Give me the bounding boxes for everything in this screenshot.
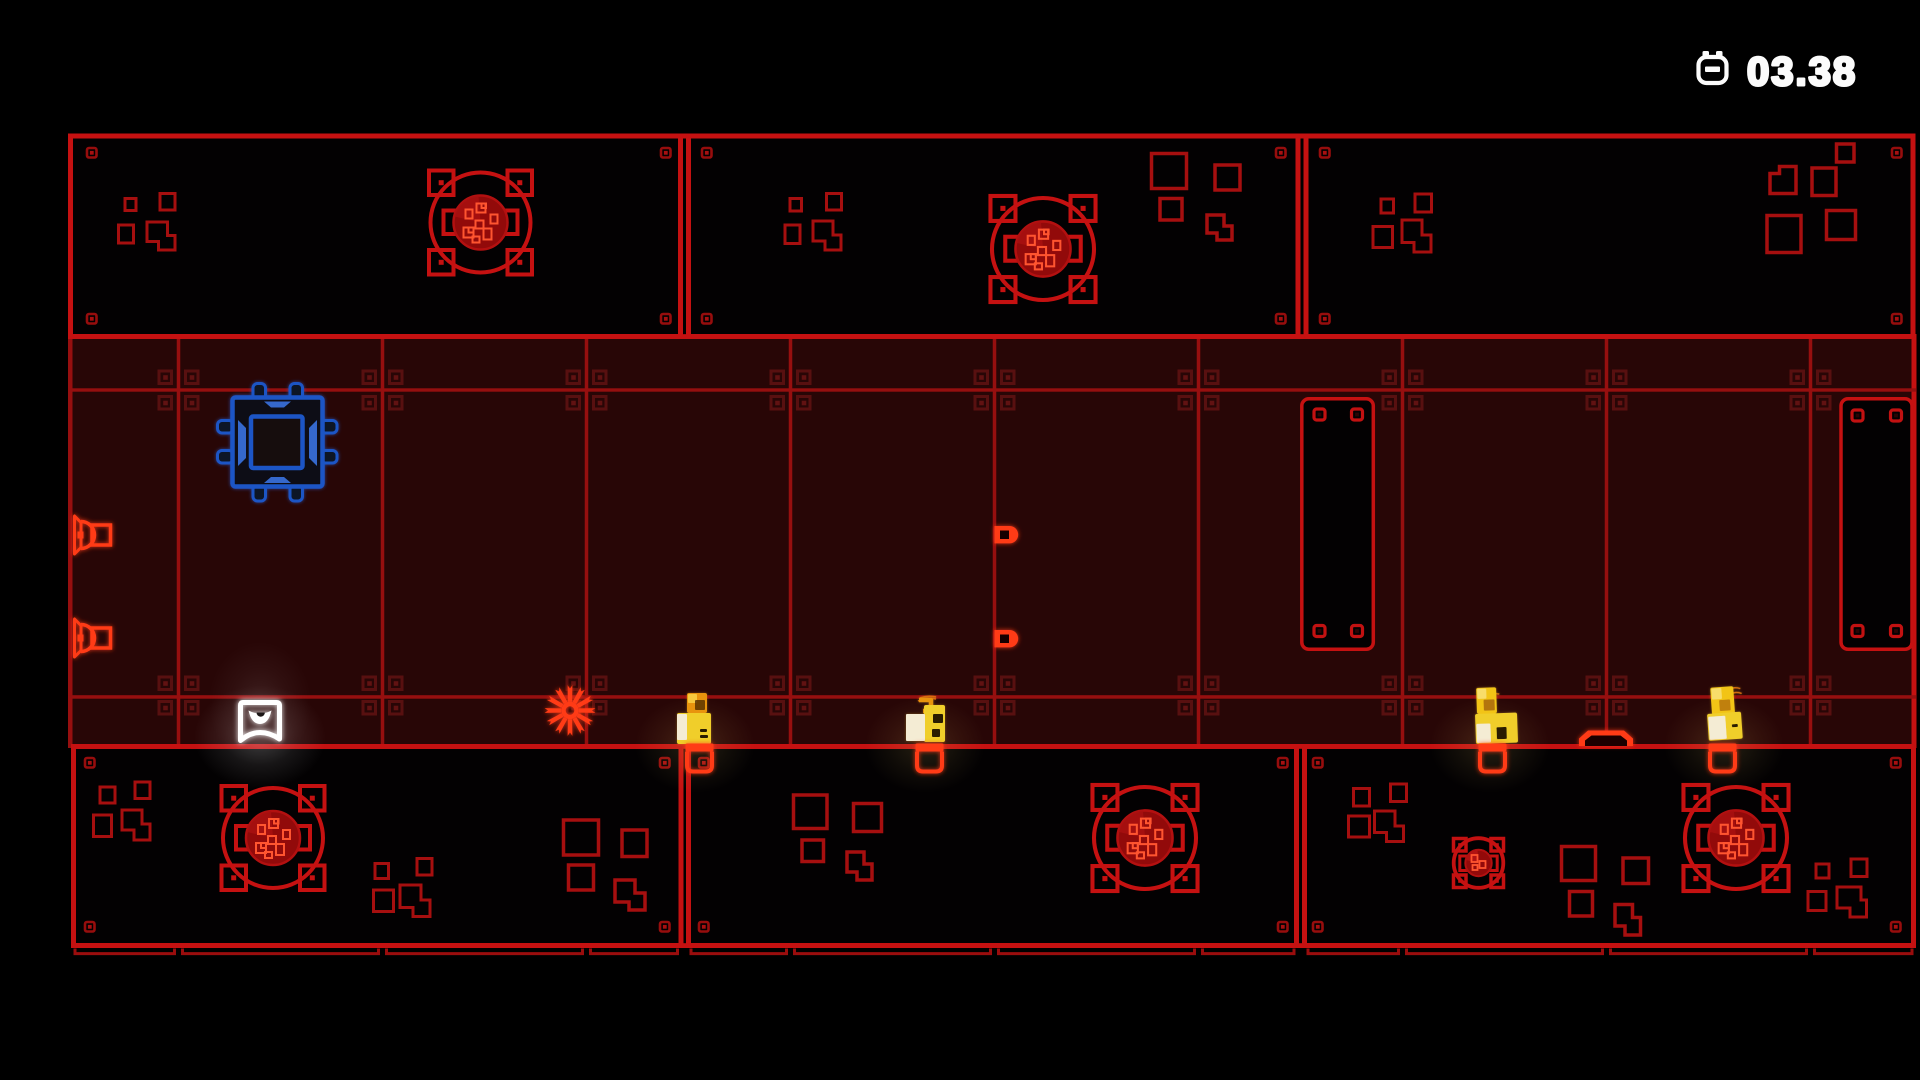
svg-text:03.38: 03.38 xyxy=(1747,50,1857,94)
